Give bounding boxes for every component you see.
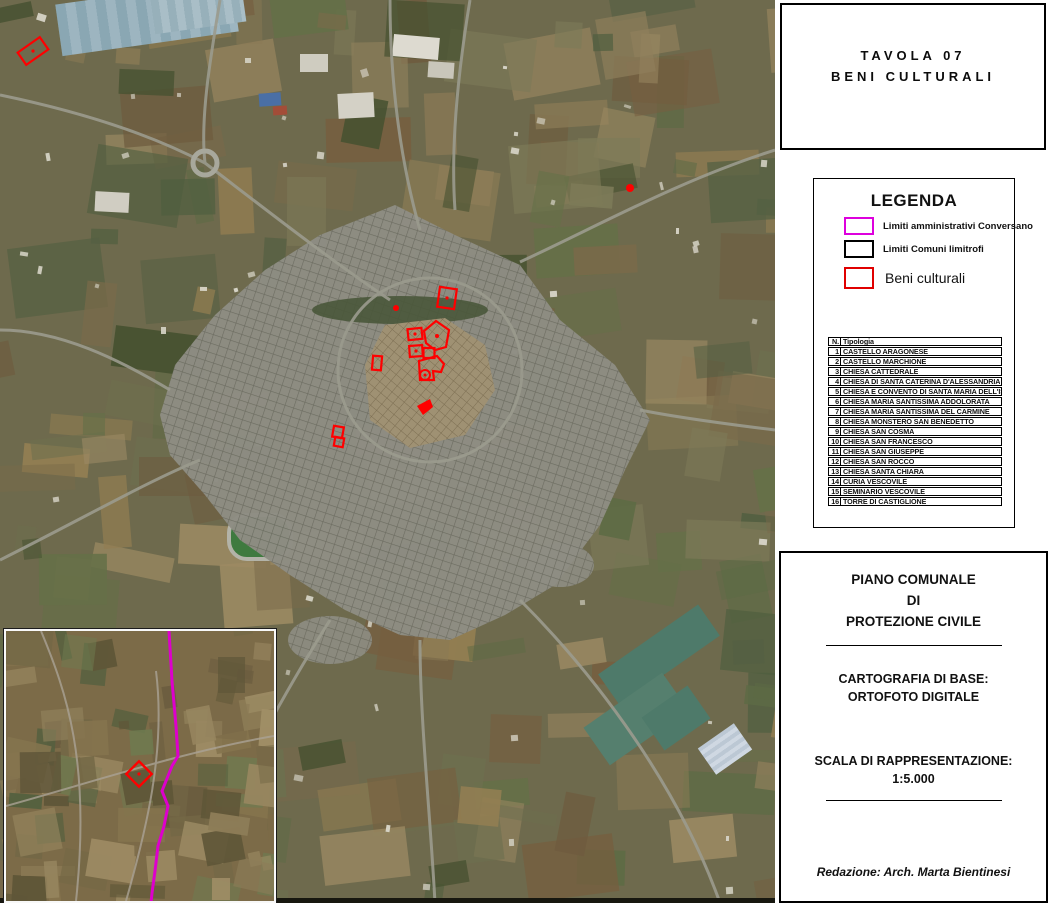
legend-label: Limiti amministrativi Conversano	[883, 221, 1033, 232]
site-name: CHIESA E CONVENTO DI SANTA MARIA DELL'IS…	[841, 388, 1001, 395]
site-number: 16	[829, 498, 841, 505]
heritage-site-outline-2-dot	[445, 296, 448, 299]
table-row: 2CASTELLO MARCHIONE	[828, 357, 1002, 366]
inset-overlay	[6, 631, 274, 901]
cartography-note: CARTOGRAFIA DI BASE: ORTOFOTO DIGITALE	[781, 670, 1046, 706]
site-name: CHIESA SAN GIUSEPPE	[841, 448, 924, 455]
black-boundary-swatch	[844, 240, 874, 258]
inset-map	[4, 629, 276, 903]
site-name: CHIESA MARIA SANTISSIMA ADDOLORATA	[841, 398, 990, 405]
heritage-site-outline-5-dot	[414, 349, 417, 352]
site-number: 11	[829, 448, 841, 455]
site-name: CHIESA CATTEDRALE	[841, 368, 918, 375]
legend-title: LEGENDA	[814, 191, 1014, 211]
site-number: 14	[829, 478, 841, 485]
col-header-tipologia: Tipologia	[841, 338, 874, 345]
table-row: 4CHIESA DI SANTA CATERINA D'ALESSANDRIA	[828, 377, 1002, 386]
site-number: 15	[829, 488, 841, 495]
site-name: CHIESA SAN FRANCESCO	[841, 438, 933, 445]
site-number: 13	[829, 468, 841, 475]
table-row: 12CHIESA SAN ROCCO	[828, 457, 1002, 466]
divider	[826, 645, 1002, 646]
heritage-site-outline-11	[334, 437, 344, 447]
heritage-site-arrow	[417, 399, 433, 415]
site-name: CURIA VESCOVILE	[841, 478, 907, 485]
table-row: 11CHIESA SAN GIUSEPPE	[828, 447, 1002, 456]
table-row: 16TORRE DI CASTIGLIONE	[828, 497, 1002, 506]
heritage-site-outline-7	[419, 356, 444, 380]
heritage-site-outline-1-dot	[31, 49, 34, 52]
plan-title-line: PIANO COMUNALE	[781, 570, 1046, 591]
sheet-subject: BENI CULTURALI	[782, 66, 1044, 87]
heritage-site-dot-2	[393, 305, 399, 311]
magenta-boundary-swatch	[844, 217, 874, 235]
table-row: 10CHIESA SAN FRANCESCO	[828, 437, 1002, 446]
table-row: 14CURIA VESCOVILE	[828, 477, 1002, 486]
table-row: 8CHIESA MONSTERO SAN BENEDETTO	[828, 417, 1002, 426]
orthophoto-map	[0, 0, 775, 903]
cartography-line: CARTOGRAFIA DI BASE:	[781, 670, 1046, 688]
site-number: 9	[829, 428, 841, 435]
site-number: 8	[829, 418, 841, 425]
site-name: CHIESA SAN ROCCO	[841, 458, 914, 465]
site-name: CASTELLO MARCHIONE	[841, 358, 926, 365]
legend-box: LEGENDA Limiti amministrativi Conversano…	[813, 178, 1015, 528]
legend-item-administrative-limits: Limiti amministrativi Conversano	[844, 217, 1033, 235]
heritage-site-dot-1	[626, 184, 634, 192]
divider	[826, 800, 1002, 801]
site-number: 12	[829, 458, 841, 465]
heritage-site-outline-9	[372, 356, 382, 371]
inset-roads	[6, 631, 274, 901]
heritage-sites-table: N. Tipologia 1CASTELLO ARAGONESE2CASTELL…	[828, 337, 1002, 507]
scale-note: SCALA DI RAPPRESENTAZIONE: 1:5.000	[781, 752, 1046, 788]
site-name: CHIESA MONSTERO SAN BENEDETTO	[841, 418, 974, 425]
table-header-row: N. Tipologia	[828, 337, 1002, 346]
col-header-number: N.	[829, 338, 841, 345]
red-heritage-swatch	[844, 267, 874, 289]
scale-value: 1:5.000	[781, 770, 1046, 788]
site-name: CHIESA DI SANTA CATERINA D'ALESSANDRIA	[841, 378, 1000, 385]
site-number: 2	[829, 358, 841, 365]
plan-title: PIANO COMUNALE DI PROTEZIONE CIVILE	[781, 570, 1046, 633]
legend-item-neighbour-limits: Limiti Comuni limitrofi	[844, 240, 984, 258]
table-row: 15SEMINARIO VESCOVILE	[828, 487, 1002, 496]
site-name: SEMINARIO VESCOVILE	[841, 488, 925, 495]
plan-title-line: PROTEZIONE CIVILE	[781, 612, 1046, 633]
table-row: 5CHIESA E CONVENTO DI SANTA MARIA DELL'I…	[828, 387, 1002, 396]
cartography-line: ORTOFOTO DIGITALE	[781, 688, 1046, 706]
sheet-title-box: TAVOLA 07 BENI CULTURALI	[780, 3, 1046, 150]
plan-title-line: DI	[781, 591, 1046, 612]
site-number: 6	[829, 398, 841, 405]
heritage-site-dot-3	[435, 334, 439, 338]
heritage-site-outline-3-dot	[413, 332, 416, 335]
site-name: TORRE DI CASTIGLIONE	[841, 498, 926, 505]
site-number: 1	[829, 348, 841, 355]
site-name: CASTELLO ARAGONESE	[841, 348, 928, 355]
legend-item-cultural-heritage: Beni culturali	[844, 267, 965, 289]
site-number: 4	[829, 378, 841, 385]
credit-line: Redazione: Arch. Marta Bientinesi	[781, 865, 1046, 879]
site-number: 7	[829, 408, 841, 415]
table-row: 3CHIESA CATTEDRALE	[828, 367, 1002, 376]
sheet-number: TAVOLA 07	[782, 45, 1044, 66]
table-row: 1CASTELLO ARAGONESE	[828, 347, 1002, 356]
table-row: 9CHIESA SAN COSMA	[828, 427, 1002, 436]
site-number: 5	[829, 388, 841, 395]
table-row: 6CHIESA MARIA SANTISSIMA ADDOLORATA	[828, 397, 1002, 406]
site-number: 10	[829, 438, 841, 445]
site-name: CHIESA MARIA SANTISSIMA DEL CARMINE	[841, 408, 990, 415]
site-name: CHIESA SAN COSMA	[841, 428, 914, 435]
legend-label: Beni culturali	[885, 270, 965, 286]
table-row: 13CHIESA SANTA CHIARA	[828, 467, 1002, 476]
site-number: 3	[829, 368, 841, 375]
scale-line: SCALA DI RAPPRESENTAZIONE:	[781, 752, 1046, 770]
legend-label: Limiti Comuni limitrofi	[883, 244, 984, 255]
site-name: CHIESA SANTA CHIARA	[841, 468, 924, 475]
plan-info-box: PIANO COMUNALE DI PROTEZIONE CIVILE CART…	[779, 551, 1048, 903]
table-row: 7CHIESA MARIA SANTISSIMA DEL CARMINE	[828, 407, 1002, 416]
heritage-site-dot-4	[424, 374, 427, 377]
